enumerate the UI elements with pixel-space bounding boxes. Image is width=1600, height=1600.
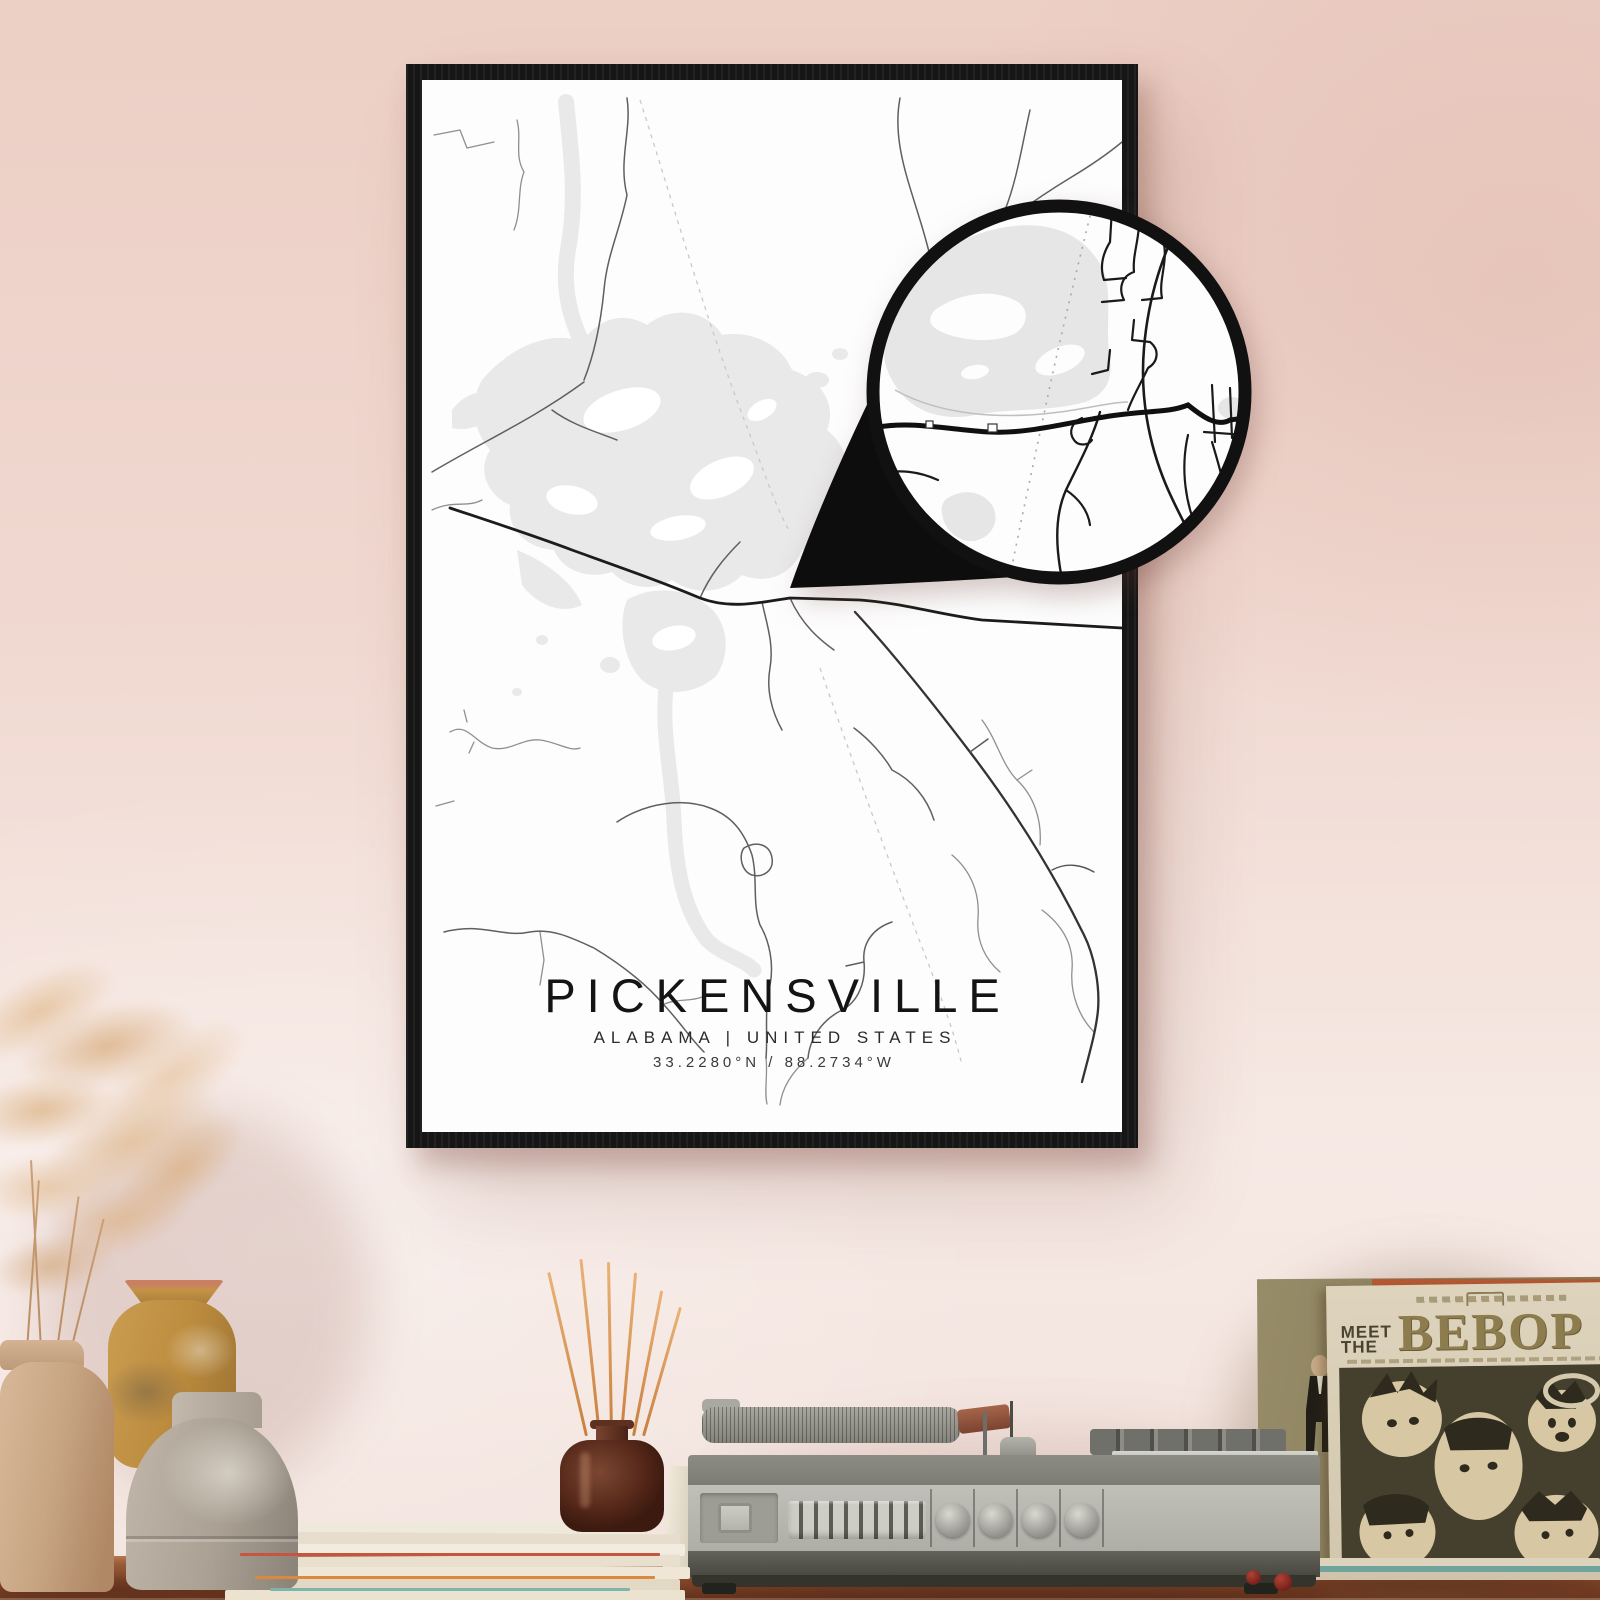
record-player xyxy=(688,1393,1320,1595)
diffuser-highlight xyxy=(580,1452,590,1508)
volume-knob xyxy=(936,1503,970,1537)
poster-coordinates: 33.2280°N / 88.2734°W xyxy=(422,1054,1122,1071)
poster-caption: PICKENSVILLE ALABAMA | UNITED STATES 33.… xyxy=(422,972,1122,1071)
panel-groove xyxy=(973,1489,975,1547)
tonearm-pole xyxy=(983,1411,987,1455)
sleeve-photo-panel xyxy=(1339,1364,1600,1564)
player-foot xyxy=(1244,1583,1278,1594)
preset-key-bank xyxy=(788,1501,926,1539)
player-base-lip xyxy=(692,1575,1316,1587)
sleeve-fine-print-bottom xyxy=(1347,1356,1600,1364)
turntable-platter xyxy=(702,1407,960,1443)
bebop-record-sleeve: MEET THE BEBOP xyxy=(1326,1282,1600,1570)
panel-groove xyxy=(1016,1489,1018,1547)
sleeve-the-text: THE xyxy=(1341,1340,1392,1356)
flat-record xyxy=(1298,1572,1600,1580)
zoom-detail-magnifier xyxy=(760,180,1270,612)
tan-vase xyxy=(0,1362,114,1592)
panel-groove xyxy=(1102,1489,1104,1547)
tuning-knob xyxy=(1065,1503,1099,1537)
player-top-deck xyxy=(688,1455,1320,1485)
tone-knob xyxy=(979,1503,1013,1537)
balance-knob xyxy=(1022,1503,1056,1537)
panel-groove xyxy=(930,1489,932,1547)
panel-groove xyxy=(1059,1489,1061,1547)
player-foot xyxy=(702,1583,736,1594)
poster-subtitle: ALABAMA | UNITED STATES xyxy=(422,1028,1122,1048)
red-knob-prop xyxy=(1246,1570,1261,1585)
sleeve-bebop-title: BEBOP xyxy=(1398,1311,1585,1355)
power-button xyxy=(718,1503,752,1533)
room-scene: PICKENSVILLE ALABAMA | UNITED STATES 33.… xyxy=(0,0,1600,1600)
sleeve-title-block: MEET THE BEBOP xyxy=(1340,1306,1600,1356)
sleeve-faces-art xyxy=(1339,1364,1600,1564)
diffuser-bottle xyxy=(560,1440,664,1532)
player-base xyxy=(688,1551,1320,1577)
poster-title: PICKENSVILLE xyxy=(422,972,1122,1021)
red-knob-prop xyxy=(1274,1573,1292,1591)
